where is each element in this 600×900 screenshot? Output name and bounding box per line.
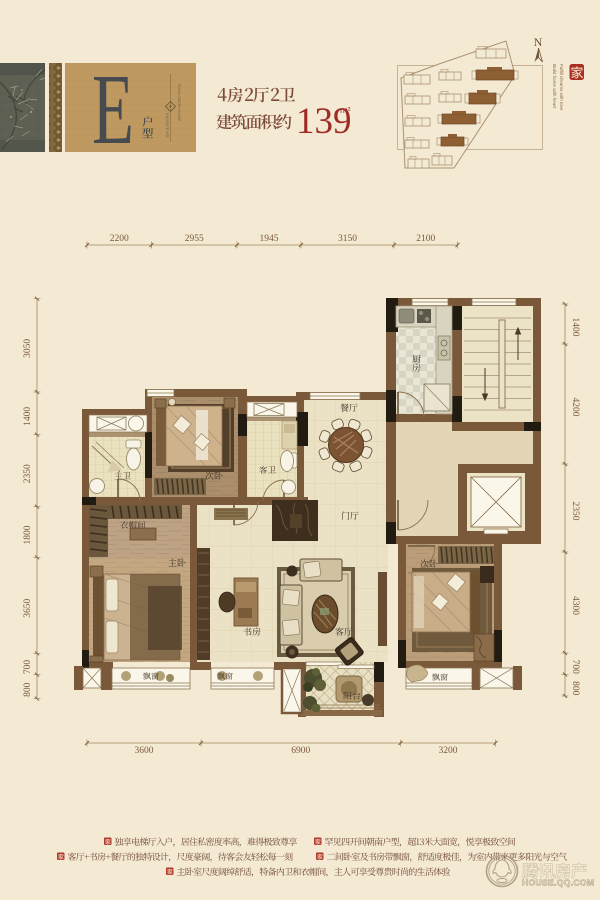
svg-text:N: N [534,35,543,49]
svg-text:2350: 2350 [23,464,33,483]
svg-text:2350: 2350 [570,502,580,521]
svg-text:800: 800 [570,681,580,696]
svg-text:2100: 2100 [416,234,435,244]
svg-text:3150: 3150 [338,234,357,244]
svg-text:3650: 3650 [23,599,33,618]
svg-text:ROYAL GARDEN HOUSE: ROYAL GARDEN HOUSE [177,84,181,121]
svg-text:3200: 3200 [439,746,458,756]
svg-text:1945: 1945 [260,234,279,244]
svg-text:1400: 1400 [570,318,580,337]
svg-text:2200: 2200 [110,234,129,244]
svg-text:4200: 4200 [570,398,580,417]
svg-text:HOUSE.QQ.COM: HOUSE.QQ.COM [522,878,594,888]
svg-text:Build home with heart: Build home with heart [552,64,557,109]
svg-text:1400: 1400 [23,407,33,426]
svg-text:3050: 3050 [23,339,33,358]
svg-text:m²: m² [340,105,351,115]
svg-text:700: 700 [570,660,580,675]
svg-text:3600: 3600 [135,746,154,756]
svg-text:EXQUISITE LIFE: EXQUISITE LIFE [165,113,169,138]
svg-text:800: 800 [23,682,33,697]
svg-text:E: E [92,53,134,165]
svg-text:6900: 6900 [291,746,310,756]
svg-text:700: 700 [23,660,33,675]
svg-text:Fulfill dreams with love: Fulfill dreams with love [559,64,564,111]
svg-text:2955: 2955 [185,234,204,244]
svg-text:1800: 1800 [23,525,33,544]
svg-text:4300: 4300 [570,596,580,615]
